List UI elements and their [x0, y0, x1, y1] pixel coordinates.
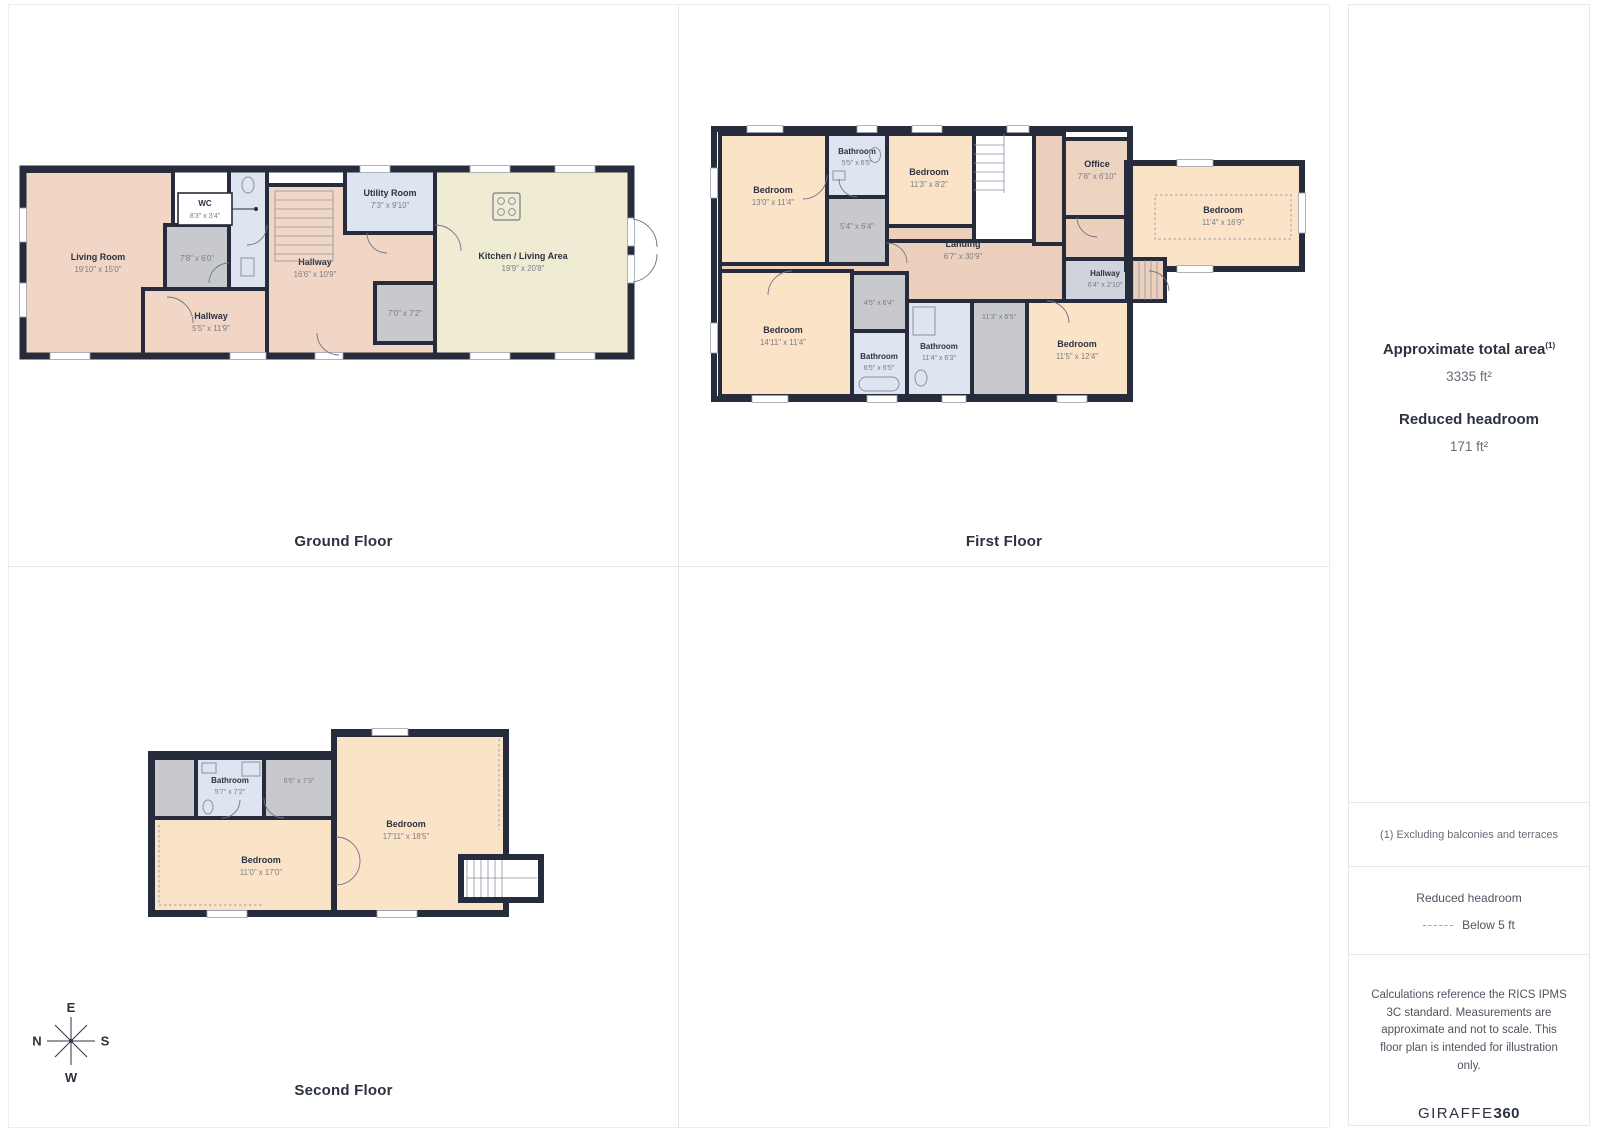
room-bathroom-sw: Bathroom 6'5" x 6'5" [852, 331, 907, 396]
svg-text:Hallway: Hallway [1090, 269, 1120, 278]
svg-text:11'0" x 17'0": 11'0" x 17'0" [240, 868, 282, 877]
total-area-title: Approximate total area(1) [1349, 341, 1589, 358]
svg-text:7'8" x 6'10": 7'8" x 6'10" [1078, 172, 1117, 181]
room-utility: Utility Room 7'3" x 9'10" [345, 169, 435, 233]
svg-text:17'11" x 18'5": 17'11" x 18'5" [383, 832, 430, 841]
headroom-legend: Reduced headroom Below 5 ft [1349, 866, 1589, 953]
reduced-headroom-title: Reduced headroom [1349, 411, 1589, 428]
compass-rose: E N S W [26, 996, 116, 1086]
patio-door-arc [633, 254, 657, 282]
svg-text:Hallway: Hallway [194, 311, 228, 321]
room-bedroom-sw: Bedroom 14'11" x 11'4" [720, 271, 852, 396]
svg-text:Bedroom: Bedroom [763, 325, 803, 335]
svg-text:11'3" x 8'2": 11'3" x 8'2" [910, 180, 948, 189]
disclaimer-text: Calculations reference the RICS IPMS 3C … [1369, 987, 1569, 1076]
second-floor-label: Second Floor [9, 1082, 678, 1099]
floorplan-canvas: Living Room 19'10" x 15'0" Utility Room … [8, 4, 1330, 1128]
second-floor-plan: Bedroom 11'0" x 17'0" Bathroom 5'7" x 7'… [147, 725, 557, 925]
svg-text:7'8" x 6'0": 7'8" x 6'0" [180, 254, 214, 263]
compass-right: S [101, 1034, 110, 1049]
svg-text:16'6" x 10'9": 16'6" x 10'9" [294, 270, 337, 279]
legend-title: Reduced headroom [1349, 891, 1589, 905]
room-bedroom-e: Bedroom 11'4" x 16'9" [1127, 163, 1302, 269]
svg-text:Bedroom: Bedroom [909, 167, 949, 177]
svg-text:14'11" x 11'4": 14'11" x 11'4" [760, 338, 806, 347]
room-store-left [153, 758, 196, 818]
room-bathroom-s: Bathroom 11'4" x 6'3" [907, 301, 972, 396]
legend-item: Below 5 ft [1462, 918, 1515, 932]
compass-left: N [32, 1034, 41, 1049]
patio-door-arc [633, 219, 657, 247]
footnote: (1) Excluding balconies and terraces [1349, 802, 1589, 866]
room-store-n: 5'4" x 6'4" [827, 197, 887, 264]
svg-text:Bedroom: Bedroom [386, 819, 426, 829]
svg-text:11'4" x 16'9": 11'4" x 16'9" [1202, 218, 1244, 227]
compass-top: E [67, 1000, 76, 1015]
first-floor-panel: Bedroom 13'0" x 11'4" Bathroom 5'5" x 6'… [678, 5, 1329, 566]
first-floor-label: First Floor [679, 533, 1329, 550]
room-store-se: 11'3" x 6'5" [972, 301, 1027, 396]
svg-text:Landing: Landing [946, 239, 981, 249]
room-store-2: 7'0" x 7'2" [375, 283, 435, 343]
first-floor-plan: Bedroom 13'0" x 11'4" Bathroom 5'5" x 6'… [707, 123, 1311, 413]
svg-text:7'0" x 7'2": 7'0" x 7'2" [388, 309, 422, 318]
svg-text:19'10" x 15'0": 19'10" x 15'0" [74, 265, 121, 274]
office-vestibule [1064, 217, 1130, 259]
room-bathroom-n: Bathroom 5'5" x 6'5" [827, 134, 887, 197]
room-wc [229, 169, 267, 289]
svg-text:11'4" x 6'3": 11'4" x 6'3" [922, 355, 956, 362]
svg-text:11'5" x 12'4": 11'5" x 12'4" [1056, 352, 1098, 361]
svg-text:5'4" x 6'4": 5'4" x 6'4" [840, 222, 874, 231]
svg-text:5'5" x 6'5": 5'5" x 6'5" [842, 160, 873, 167]
svg-text:7'3" x 9'10": 7'3" x 9'10" [371, 201, 410, 210]
svg-text:Bedroom: Bedroom [241, 855, 281, 865]
info-sidebar: Approximate total area(1) 3335 ft² Reduc… [1348, 4, 1590, 1126]
room-kitchen: Kitchen / Living Area 19'9" x 20'8" [435, 169, 631, 356]
reduced-headroom-value: 171 ft² [1349, 439, 1589, 454]
staircase [461, 857, 541, 900]
svg-text:8'3" x 3'4": 8'3" x 3'4" [190, 213, 221, 220]
svg-text:Kitchen / Living Area: Kitchen / Living Area [478, 251, 568, 261]
room-bedroom-w: Bedroom 11'0" x 17'0" [153, 818, 334, 912]
room-bedroom-n: Bedroom 11'3" x 8'2" [887, 134, 974, 226]
svg-text:Bedroom: Bedroom [1057, 339, 1097, 349]
room-store: 6'6" x 7'3" [264, 758, 334, 818]
ground-floor-plan: Living Room 19'10" x 15'0" Utility Room … [15, 163, 661, 368]
ground-floor-panel: Living Room 19'10" x 15'0" Utility Room … [9, 5, 678, 566]
svg-text:4'5" x 6'4": 4'5" x 6'4" [864, 300, 895, 307]
room-bathroom: Bathroom 5'7" x 7'2" [196, 758, 264, 818]
svg-text:Utility Room: Utility Room [364, 188, 417, 198]
svg-text:Office: Office [1084, 159, 1110, 169]
svg-text:19'9" x 20'8": 19'9" x 20'8" [502, 264, 545, 273]
svg-text:Living Room: Living Room [71, 252, 126, 262]
svg-text:WC: WC [198, 199, 212, 208]
dashed-line-sample [1423, 925, 1453, 926]
room-store-s: 4'5" x 6'4" [852, 273, 907, 331]
svg-text:6'7" x 30'9": 6'7" x 30'9" [944, 252, 983, 261]
total-area-value: 3335 ft² [1349, 369, 1589, 384]
svg-text:13'0" x 11'4": 13'0" x 11'4" [752, 198, 794, 207]
disclaimer-section: Calculations reference the RICS IPMS 3C … [1349, 954, 1589, 1125]
room-bedroom-nw: Bedroom 13'0" x 11'4" [720, 134, 827, 264]
second-floor-panel: Bedroom 11'0" x 17'0" Bathroom 5'7" x 7'… [9, 566, 678, 1127]
room-office: Office 7'8" x 6'10" [1064, 139, 1130, 217]
room-store-1: 7'8" x 6'0" [165, 225, 229, 289]
svg-text:Bedroom: Bedroom [753, 185, 793, 195]
giraffe360-logo: GIRAFFE360 [1369, 1102, 1569, 1125]
svg-text:Bathroom: Bathroom [211, 776, 249, 785]
room-bedroom-se: Bedroom 11'5" x 12'4" [1027, 301, 1130, 396]
svg-text:5'5" x 11'9": 5'5" x 11'9" [192, 324, 230, 333]
svg-text:Bathroom: Bathroom [860, 352, 898, 361]
ground-floor-label: Ground Floor [9, 533, 678, 550]
area-summary: Approximate total area(1) 3335 ft² Reduc… [1349, 5, 1589, 802]
svg-text:5'7" x 7'2": 5'7" x 7'2" [215, 789, 246, 796]
empty-panel [678, 566, 1329, 1127]
stairwell [974, 134, 1034, 241]
svg-text:6'5" x 6'5": 6'5" x 6'5" [864, 365, 895, 372]
svg-text:6'6" x 7'3": 6'6" x 7'3" [284, 778, 315, 785]
footnote-ref: (1) [1545, 341, 1555, 350]
svg-text:Bathroom: Bathroom [920, 342, 958, 351]
svg-text:6'4" x 2'10": 6'4" x 2'10" [1088, 282, 1123, 289]
svg-text:11'3" x 6'5": 11'3" x 6'5" [982, 314, 1016, 321]
svg-text:Hallway: Hallway [298, 257, 332, 267]
svg-text:Bedroom: Bedroom [1203, 205, 1243, 215]
